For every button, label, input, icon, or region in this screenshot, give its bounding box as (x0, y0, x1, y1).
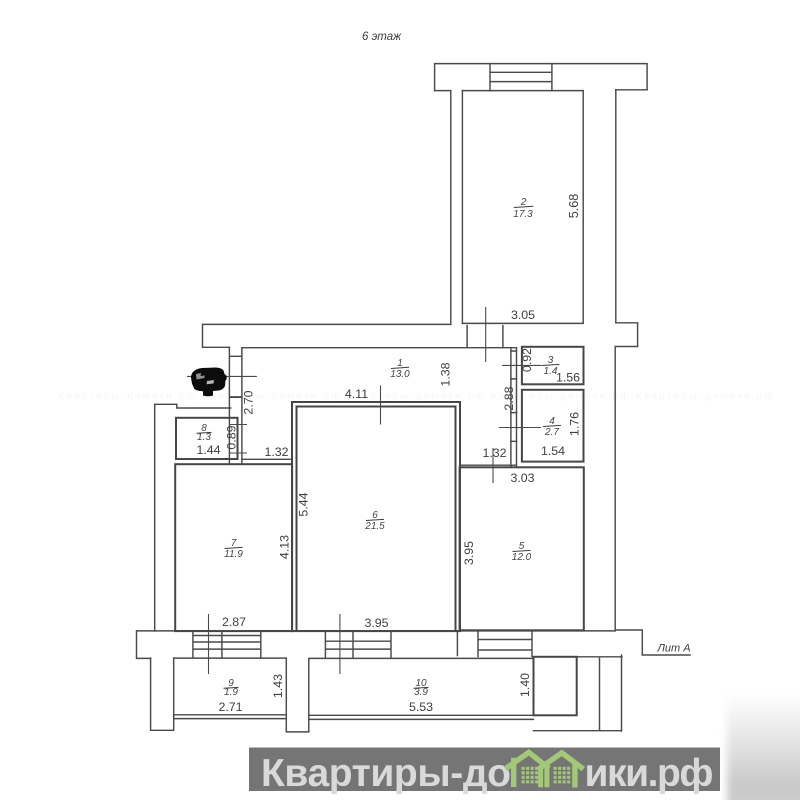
svg-text:3.9: 3.9 (414, 687, 428, 698)
svg-text:2.7: 2.7 (544, 427, 559, 438)
svg-text:3.05: 3.05 (511, 308, 535, 322)
svg-text:1.54: 1.54 (541, 444, 565, 458)
svg-text:2.71: 2.71 (218, 700, 242, 714)
svg-text:1.76: 1.76 (568, 412, 582, 436)
svg-text:1.9: 1.9 (224, 687, 238, 698)
svg-text:12.0: 12.0 (512, 552, 532, 563)
svg-text:2.87: 2.87 (222, 615, 246, 629)
svg-text:0.89: 0.89 (225, 425, 239, 449)
svg-text:6 этаж: 6 этаж (362, 31, 402, 43)
svg-text:5.44: 5.44 (297, 492, 311, 516)
svg-text:1.3: 1.3 (197, 432, 211, 443)
svg-text:13.0: 13.0 (390, 369, 410, 380)
svg-text:ики.рф: ики.рф (585, 752, 714, 795)
svg-text:5.68: 5.68 (567, 194, 581, 219)
svg-text:Лит А: Лит А (656, 643, 690, 655)
svg-text:1.56: 1.56 (556, 371, 580, 385)
svg-text:1.44: 1.44 (196, 443, 220, 457)
svg-text:1.38: 1.38 (439, 362, 453, 386)
svg-text:Квартиры-домики.рф Квартиры-: Квартиры-домики.рф Квартиры-домики.рф Кв… (58, 390, 775, 402)
svg-text:3.95: 3.95 (364, 616, 388, 630)
svg-text:3.95: 3.95 (462, 541, 476, 565)
svg-text:2.88: 2.88 (502, 386, 516, 410)
svg-text:5.53: 5.53 (409, 700, 433, 714)
svg-text:1.32: 1.32 (482, 446, 506, 460)
svg-text:0.92: 0.92 (520, 348, 534, 372)
svg-text:4.11: 4.11 (345, 387, 368, 401)
svg-text:1.32: 1.32 (264, 445, 288, 459)
svg-text:21.5: 21.5 (364, 521, 385, 532)
svg-text:Квартиры-до: Квартиры-до (261, 752, 511, 795)
svg-text:11.9: 11.9 (224, 549, 243, 560)
svg-text:17.3: 17.3 (513, 209, 533, 220)
svg-text:2.70: 2.70 (242, 390, 256, 414)
svg-text:3.03: 3.03 (510, 471, 534, 485)
svg-text:4.13: 4.13 (278, 535, 292, 559)
svg-text:1.43: 1.43 (271, 674, 285, 698)
svg-text:1.40: 1.40 (518, 673, 532, 697)
